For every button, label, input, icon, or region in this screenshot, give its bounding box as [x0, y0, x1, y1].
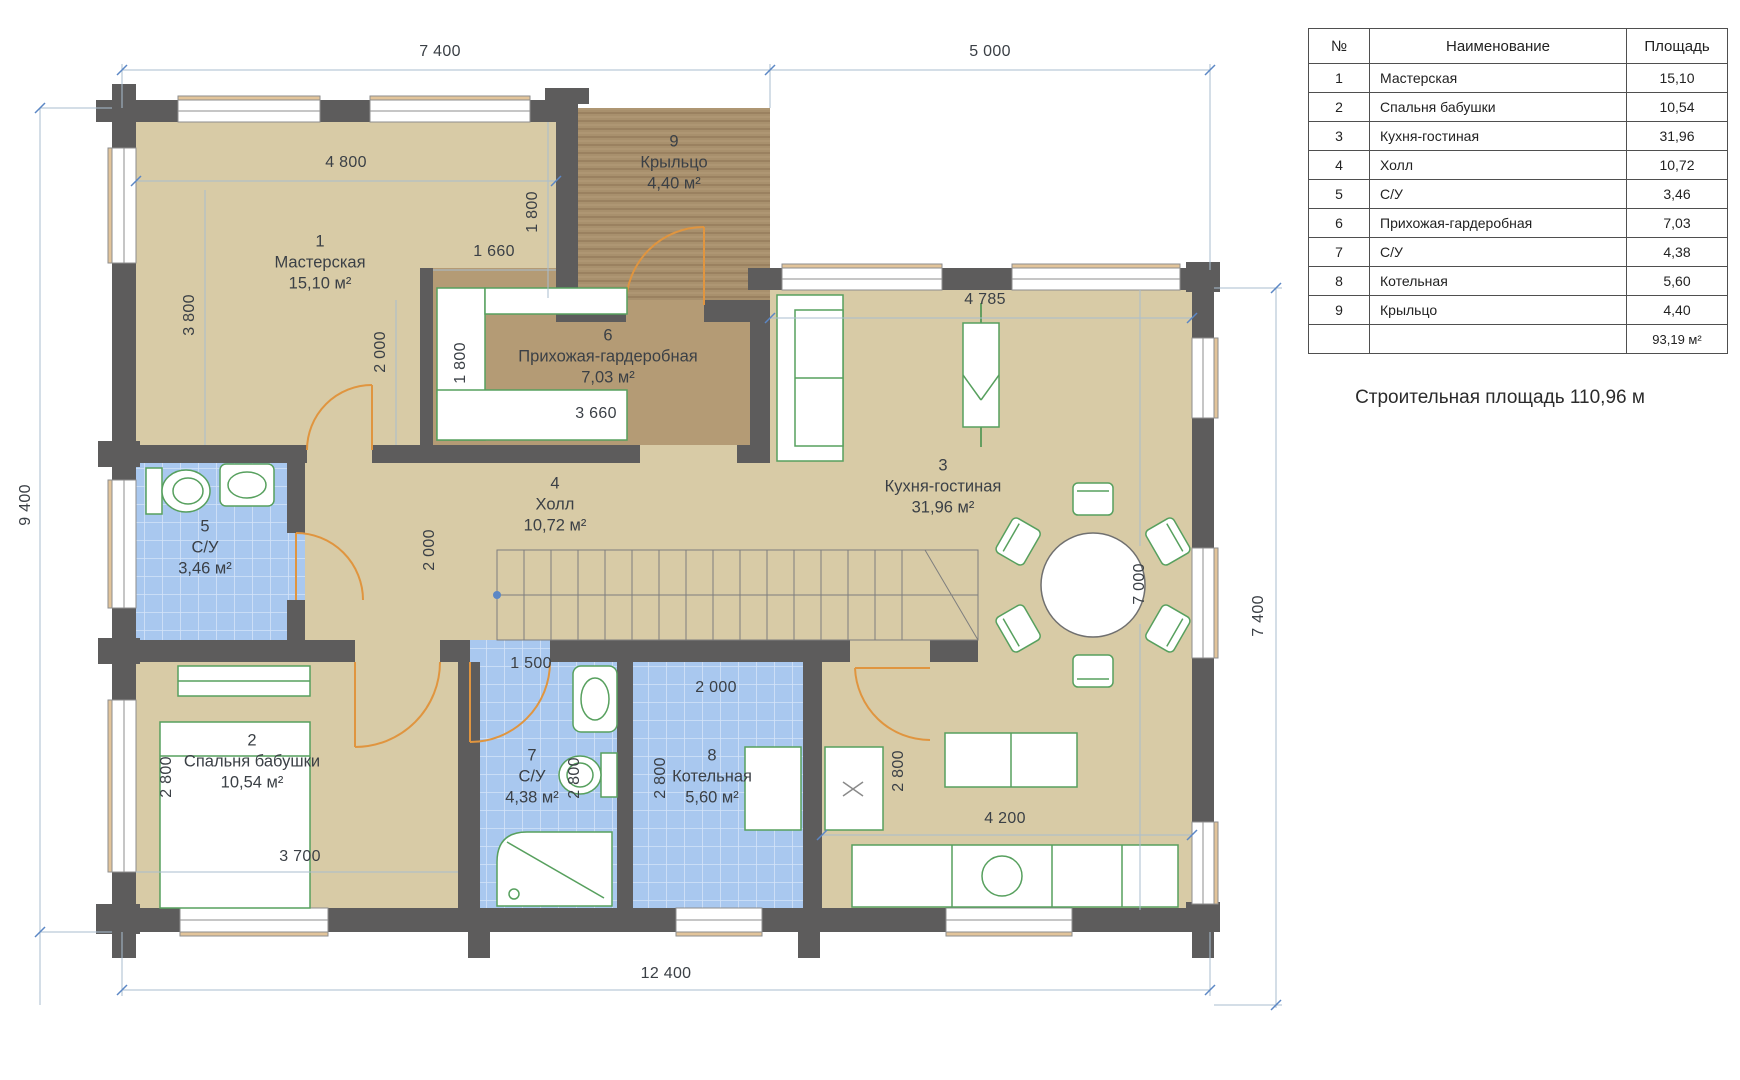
room-area: 10,54 м²: [184, 773, 320, 794]
dim-label-hall-depth: 2 000: [421, 529, 439, 571]
dim-label-room1-niche: 1 660: [473, 243, 515, 261]
window: [108, 700, 136, 872]
room-area: 3,46 м²: [178, 559, 232, 580]
wall: [930, 640, 978, 662]
row-name: С/У: [1370, 238, 1627, 267]
room-label-porch: 9Крыльцо4,40 м²: [640, 132, 707, 195]
row-name: Спальня бабушки: [1370, 93, 1627, 122]
table-row: 2Спальня бабушки10,54: [1309, 93, 1728, 122]
floor-plan-page: 7 400 5 000 9 400 7 400 12 400 4 800 3 8…: [0, 0, 1740, 1080]
column: [545, 88, 589, 104]
room-number: 8: [672, 746, 752, 767]
total-empty-name: [1370, 325, 1627, 354]
dim-label-fridge-gap: 2 800: [890, 750, 908, 792]
dim-label-bath7-width: 1 500: [510, 655, 552, 673]
room-name: Прихожая-гардеробная: [518, 347, 697, 368]
wall: [112, 445, 307, 463]
room-label-hallway: 6Прихожая-гардеробная7,03 м²: [518, 326, 697, 389]
row-name: Холл: [1370, 151, 1627, 180]
fridge: [825, 747, 883, 830]
row-area: 10,72: [1627, 151, 1728, 180]
row-name: Кухня-гостиная: [1370, 122, 1627, 151]
dim-label-hallway-width: 3 660: [575, 405, 617, 423]
toilet: [146, 468, 210, 514]
legend-col-name: Наименование: [1370, 29, 1627, 64]
room-name: С/У: [505, 767, 559, 788]
dim-label-right: 7 400: [1250, 595, 1268, 637]
dim-label-bath7-height: 2 800: [566, 757, 584, 799]
wall: [372, 445, 640, 463]
row-num: 6: [1309, 209, 1370, 238]
wall: [737, 445, 770, 463]
room-number: 3: [885, 456, 1002, 477]
column: [112, 932, 136, 958]
row-name: Мастерская: [1370, 64, 1627, 93]
room-label-bath7: 7С/У4,38 м²: [505, 746, 559, 809]
row-area: 5,60: [1627, 267, 1728, 296]
row-area: 4,38: [1627, 238, 1728, 267]
boiler-unit: [745, 747, 801, 830]
window: [180, 908, 328, 936]
column: [798, 932, 820, 958]
dim-label-room1-width: 4 800: [325, 154, 367, 172]
dim-label-top-right: 5 000: [969, 43, 1011, 61]
stair-start-dot: [493, 591, 501, 599]
wall: [420, 268, 433, 463]
window: [782, 264, 942, 290]
room-number: 4: [524, 474, 587, 495]
kitchen-counter: [852, 845, 1178, 907]
window: [108, 480, 136, 608]
row-area: 3,46: [1627, 180, 1728, 209]
dim-label-room1-inner: 2 000: [372, 331, 390, 373]
row-area: 31,96: [1627, 122, 1728, 151]
room-area: 4,40 м²: [640, 174, 707, 195]
room-number: 6: [518, 326, 697, 347]
dining-table: [1041, 533, 1145, 637]
table-row: 8Котельная5,60: [1309, 267, 1728, 296]
table-row: 7С/У4,38: [1309, 238, 1728, 267]
wall: [617, 662, 633, 908]
room-label-bedroom: 2Спальня бабушки10,54 м²: [184, 731, 320, 794]
total-area: 93,19 м²: [1627, 325, 1728, 354]
dim-label-top-left: 7 400: [419, 43, 461, 61]
chair: [1073, 655, 1113, 687]
room-label-hall: 4Холл10,72 м²: [524, 474, 587, 537]
wall: [287, 463, 305, 533]
table-row: 1Мастерская15,10: [1309, 64, 1728, 93]
wall: [550, 640, 850, 662]
column: [98, 638, 140, 664]
porch-threshold: [626, 300, 704, 322]
legend-table: № Наименование Площадь 1Мастерская15,10 …: [1308, 28, 1728, 354]
sofa: [777, 295, 843, 461]
wall: [803, 662, 822, 908]
dim-label-counter-width: 4 200: [984, 810, 1026, 828]
room-area: 4,38 м²: [505, 788, 559, 809]
dim-label-bedroom-width: 3 700: [279, 848, 321, 866]
window: [1192, 822, 1218, 904]
row-name: Котельная: [1370, 267, 1627, 296]
room-name: Кухня-гостиная: [885, 477, 1002, 498]
column: [98, 441, 140, 467]
dim-label-bedroom-height: 2 800: [158, 756, 176, 798]
window: [1192, 548, 1218, 658]
window: [1192, 338, 1218, 418]
window: [676, 908, 762, 936]
room-name: С/У: [178, 538, 232, 559]
dim-label-kitchen-height: 7 000: [1131, 563, 1149, 605]
room-label-bath5: 5С/У3,46 м²: [178, 517, 232, 580]
door-gap: [640, 445, 737, 463]
wall: [440, 640, 470, 662]
window: [946, 908, 1072, 936]
room-area: 15,10 м²: [274, 274, 365, 295]
room-number: 1: [274, 232, 365, 253]
bathroom-sink: [220, 464, 274, 506]
legend-col-area: Площадь: [1627, 29, 1728, 64]
window: [108, 148, 136, 263]
dim-label-kitchen-top: 4 785: [964, 291, 1006, 309]
table-row: 4Холл10,72: [1309, 151, 1728, 180]
door-gap: [307, 445, 372, 463]
row-num: 7: [1309, 238, 1370, 267]
room-name: Холл: [524, 495, 587, 516]
room-area: 7,03 м²: [518, 368, 697, 389]
shower: [497, 832, 612, 906]
fireplace: [963, 303, 999, 447]
dim-label-boiler-height: 2 800: [652, 757, 670, 799]
total-empty-num: [1309, 325, 1370, 354]
chair: [1073, 483, 1113, 515]
row-num: 4: [1309, 151, 1370, 180]
door-gap: [355, 640, 440, 662]
room-label-kitchen: 3Кухня-гостиная31,96 м²: [885, 456, 1002, 519]
room-area: 5,60 м²: [672, 788, 752, 809]
dim-label-wardrobe: 1 800: [452, 342, 470, 384]
table-row: 5С/У3,46: [1309, 180, 1728, 209]
room-area: 10,72 м²: [524, 516, 587, 537]
column: [112, 84, 136, 134]
room-name: Мастерская: [274, 253, 365, 274]
kitchen-island: [945, 733, 1077, 787]
legend-col-num: №: [1309, 29, 1370, 64]
row-area: 10,54: [1627, 93, 1728, 122]
row-area: 15,10: [1627, 64, 1728, 93]
room-area: 31,96 м²: [885, 498, 1002, 519]
room-label-boiler: 8Котельная5,60 м²: [672, 746, 752, 809]
room-label-masterskaya: 1Мастерская15,10 м²: [274, 232, 365, 295]
column: [468, 932, 490, 958]
window: [1012, 264, 1180, 290]
column: [96, 904, 140, 934]
row-name: Прихожая-гардеробная: [1370, 209, 1627, 238]
dim-label-room1-height: 3 800: [181, 294, 199, 336]
row-num: 1: [1309, 64, 1370, 93]
row-area: 7,03: [1627, 209, 1728, 238]
row-num: 3: [1309, 122, 1370, 151]
wall: [287, 600, 305, 640]
wall: [112, 640, 355, 662]
row-num: 8: [1309, 267, 1370, 296]
room-name: Крыльцо: [640, 153, 707, 174]
dim-label-porch-depth: 1 800: [524, 191, 542, 233]
room-name: Спальня бабушки: [184, 752, 320, 773]
legend-header-row: № Наименование Площадь: [1309, 29, 1728, 64]
room-number: 7: [505, 746, 559, 767]
row-num: 5: [1309, 180, 1370, 209]
column: [1192, 932, 1214, 958]
building-area-summary: Строительная площадь 110,96 м: [1355, 387, 1645, 409]
row-num: 2: [1309, 93, 1370, 122]
table-row: 6Прихожая-гардеробная7,03: [1309, 209, 1728, 238]
row-name: С/У: [1370, 180, 1627, 209]
table-row: 3Кухня-гостиная31,96: [1309, 122, 1728, 151]
table-row: 9Крыльцо4,40: [1309, 296, 1728, 325]
window: [370, 96, 530, 122]
dim-label-boiler-width: 2 000: [695, 679, 737, 697]
dim-label-bottom: 12 400: [641, 965, 692, 983]
window: [178, 96, 320, 122]
table-total-row: 93,19 м²: [1309, 325, 1728, 354]
bathroom-sink: [573, 666, 617, 732]
wardrobe: [178, 666, 310, 696]
row-area: 4,40: [1627, 296, 1728, 325]
column: [1186, 902, 1220, 932]
room-number: 5: [178, 517, 232, 538]
room-number: 2: [184, 731, 320, 752]
row-num: 9: [1309, 296, 1370, 325]
room-number: 9: [640, 132, 707, 153]
dim-label-left: 9 400: [17, 484, 35, 526]
row-name: Крыльцо: [1370, 296, 1627, 325]
room-name: Котельная: [672, 767, 752, 788]
